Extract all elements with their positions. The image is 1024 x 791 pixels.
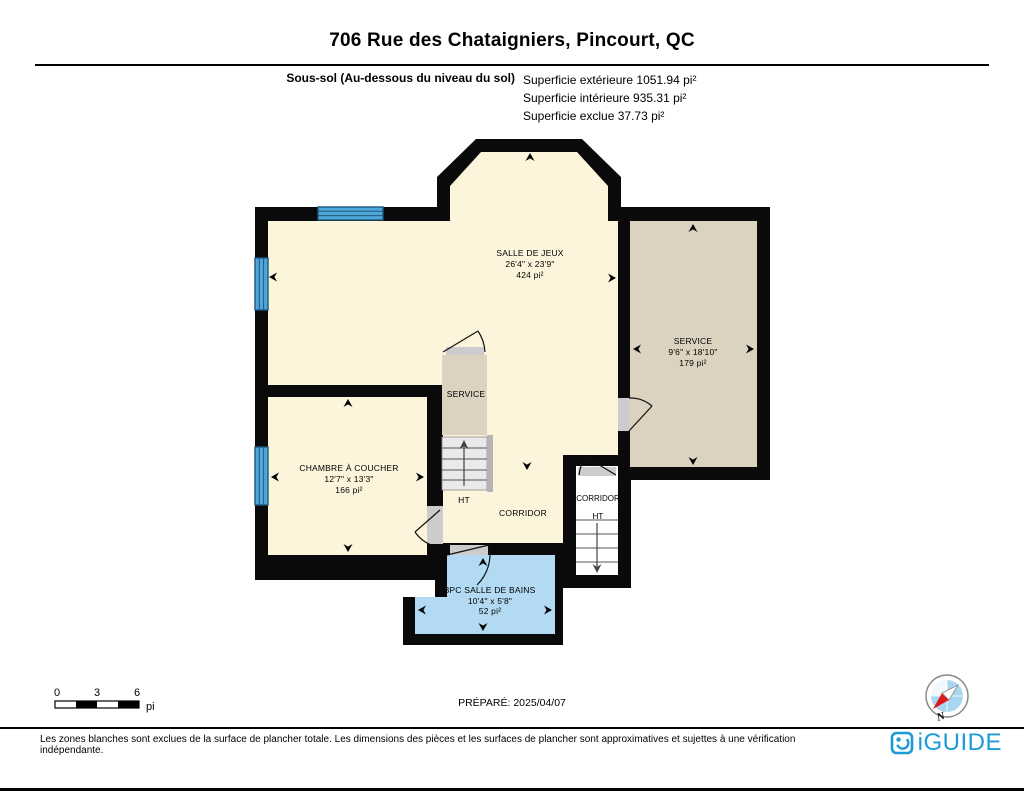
- label-salle-de-bains-dims: 10'4" x 5'8": [468, 596, 512, 606]
- footer-divider: [0, 727, 1024, 729]
- label-shaft-corridor: CORRIDOR: [576, 494, 620, 503]
- brand-name: iGUIDE: [918, 729, 1002, 757]
- label-corridor: CORRIDOR: [499, 508, 547, 518]
- floorplan-page: 706 Rue des Chataigniers, Pincourt, QC S…: [0, 0, 1024, 791]
- label-service-right-area: 179 pi²: [679, 358, 706, 368]
- label-salle-de-jeux: SALLE DE JEUX: [496, 248, 563, 258]
- floor-plan-svg: SALLE DE JEUX 26'4" x 23'9" 424 pi² SERV…: [0, 0, 1024, 791]
- iguide-logo-icon: [890, 731, 914, 755]
- label-chambre: CHAMBRE À COUCHER: [299, 463, 398, 473]
- label-service-right-dims: 9'6" x 18'10": [668, 347, 717, 357]
- label-stair-ht: HT: [458, 495, 470, 505]
- window-top: [318, 207, 383, 220]
- label-salle-de-jeux-dims: 26'4" x 23'9": [505, 259, 554, 269]
- label-service-closet: SERVICE: [447, 389, 486, 399]
- label-salle-de-jeux-area: 424 pi²: [516, 270, 543, 280]
- label-service-right: SERVICE: [674, 336, 713, 346]
- label-shaft-ht: HT: [593, 512, 604, 521]
- brand-logo: iGUIDE: [890, 729, 1002, 757]
- label-chambre-area: 166 pi²: [335, 485, 362, 495]
- window-left-salle: [255, 258, 268, 310]
- label-chambre-dims: 12'7" x 13'3": [324, 474, 373, 484]
- window-left-chambre: [255, 447, 268, 505]
- footer-disclaimer: Les zones blanches sont exclues de la su…: [40, 734, 860, 756]
- prepared-date: PRÉPARÉ: 2025/04/07: [0, 697, 1024, 709]
- label-salle-de-bains: 3PC SALLE DE BAINS: [445, 585, 536, 595]
- stairs-up: [442, 435, 493, 492]
- label-salle-de-bains-area: 52 pi²: [479, 606, 501, 616]
